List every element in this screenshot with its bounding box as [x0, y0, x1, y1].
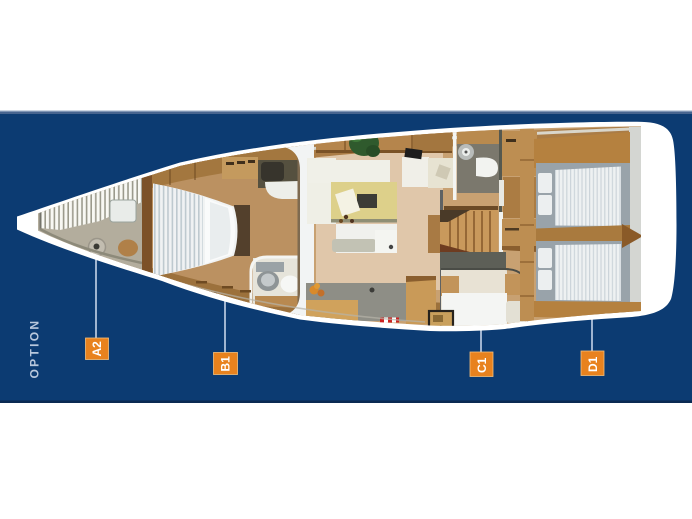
svg-text:C1: C1: [475, 357, 489, 373]
svg-text:A2: A2: [90, 341, 104, 357]
svg-text:D1: D1: [586, 356, 600, 372]
svg-text:OPTION: OPTION: [28, 319, 42, 379]
svg-text:B1: B1: [219, 356, 233, 372]
